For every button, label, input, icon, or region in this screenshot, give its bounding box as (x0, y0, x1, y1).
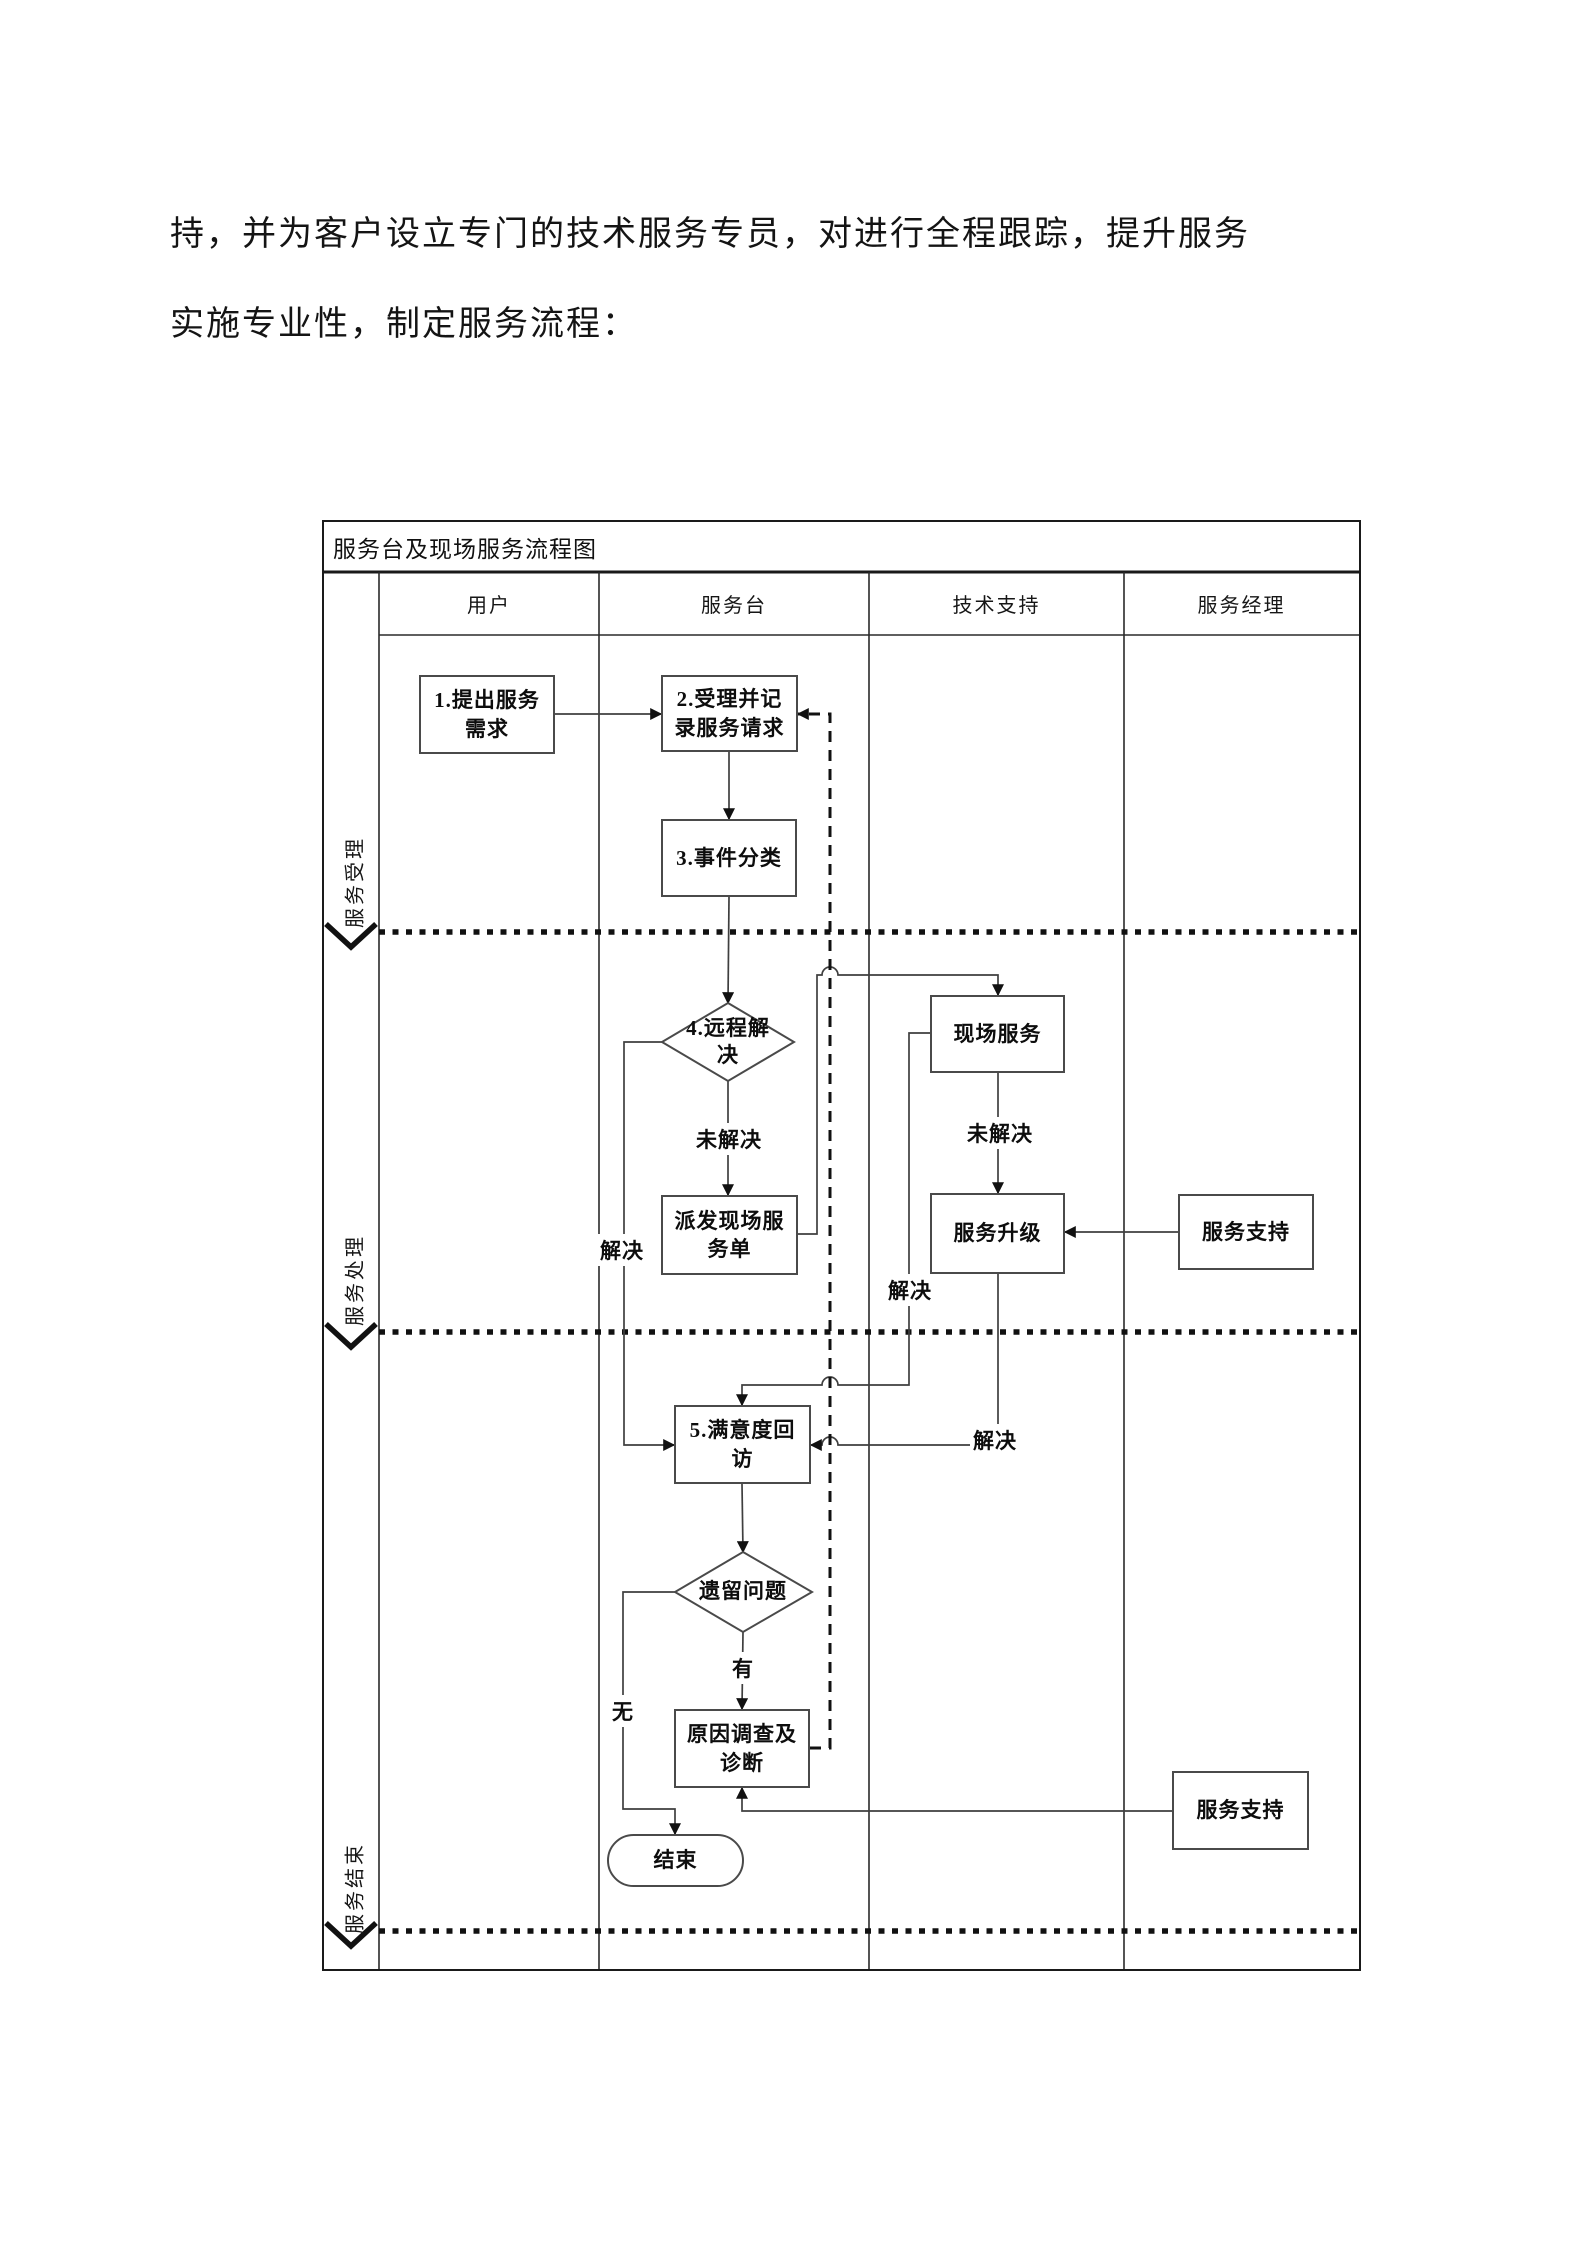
phase-label-acceptance: 服务受理 (339, 836, 368, 928)
node-service-support-bottom: 服务支持 (1172, 1771, 1309, 1850)
flowchart: 服务台及现场服务流程图 用户 服务台 技术支持 服务经理 服务受理 服务处理 服… (322, 520, 1361, 1971)
edge-label-resolved-remote: 解决 (597, 1234, 647, 1266)
edge-label-resolved-onsite: 解决 (885, 1274, 935, 1306)
node-cause-investigation: 原因调查及诊断 (674, 1709, 810, 1788)
document-page: { "paragraph": { "line1": "持，并为客户设立专门的技术… (0, 0, 1587, 2245)
node-raise-request: 1.提出服务需求 (419, 675, 555, 754)
paragraph-line-2: 实施专业性，制定服务流程： (170, 296, 638, 345)
column-header-tech-support: 技术支持 (869, 572, 1124, 635)
edge-label-resolved-escalate: 解决 (970, 1424, 1020, 1456)
edge-classify-to-remote (728, 897, 729, 1003)
node-classify-event: 3.事件分类 (661, 819, 797, 897)
edge-label-unresolved-remote: 未解决 (693, 1123, 765, 1155)
node-onsite-service: 现场服务 (930, 995, 1065, 1073)
edge-support2-to-investigate (742, 1788, 1172, 1811)
flow-edges (555, 714, 1178, 1834)
edge-label-has-pending: 有 (729, 1652, 757, 1684)
paragraph-line-1: 持，并为客户设立专门的技术服务专员，对进行全程跟踪，提升服务 (170, 206, 1250, 255)
node-end: 结束 (607, 1834, 744, 1887)
phase-label-processing: 服务处理 (339, 1234, 368, 1326)
decision-pending-label: 遗留问题 (673, 1577, 813, 1607)
edge-label-unresolved-onsite: 未解决 (964, 1117, 1036, 1149)
node-dispatch-ticket: 派发现场服务单 (661, 1195, 798, 1275)
column-header-user: 用户 (379, 572, 599, 635)
phase-chevrons (326, 924, 376, 1946)
edge-survey-to-pending (742, 1484, 743, 1552)
node-satisfaction-survey: 5.满意度回访 (674, 1405, 811, 1484)
decision-remote-label: 4.远程解决 (676, 1006, 780, 1078)
phase-label-completion: 服务结束 (339, 1842, 368, 1934)
node-service-escalate: 服务升级 (930, 1193, 1065, 1274)
edge-label-no-pending: 无 (609, 1695, 637, 1727)
node-service-support-top: 服务支持 (1178, 1194, 1314, 1270)
swimlane-grid (324, 572, 1359, 1969)
node-accept-record: 2.受理并记录服务请求 (661, 675, 798, 752)
column-header-service-manager: 服务经理 (1124, 572, 1359, 635)
flowchart-title: 服务台及现场服务流程图 (324, 522, 1359, 572)
column-header-service-desk: 服务台 (599, 572, 869, 635)
